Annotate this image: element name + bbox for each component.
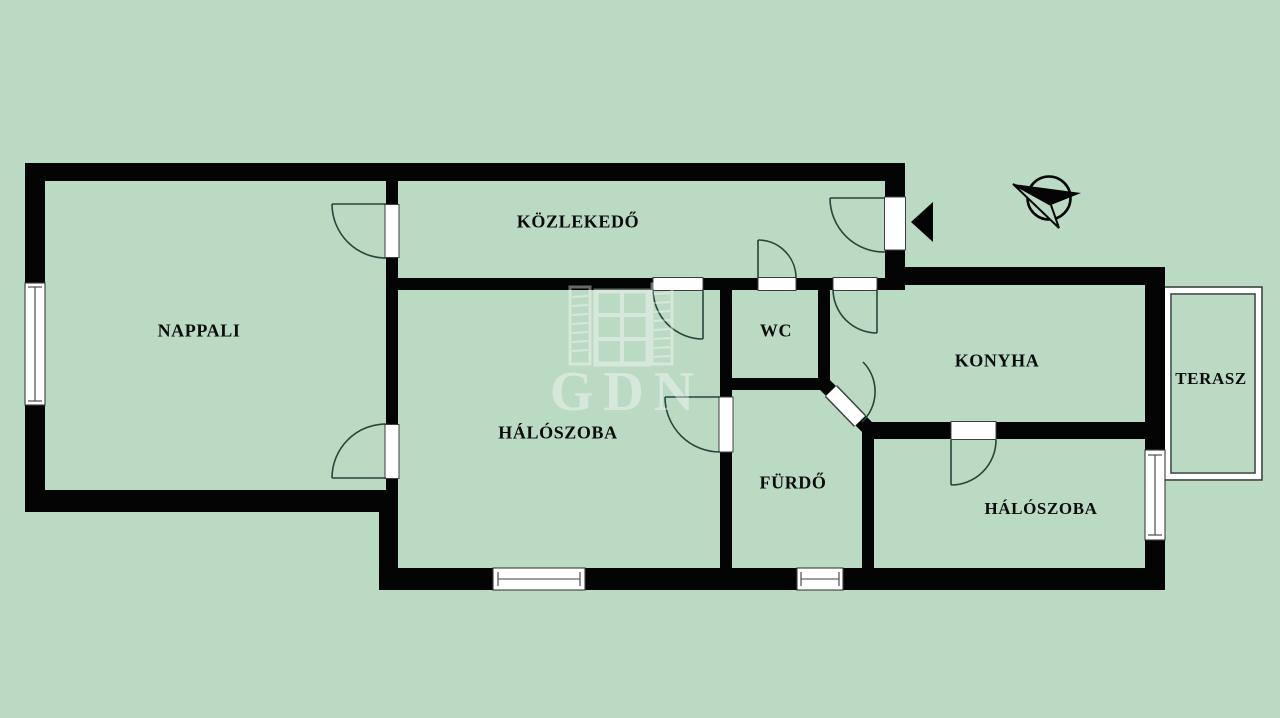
door-corridor-wc bbox=[758, 240, 796, 278]
diagonal-door-leaf bbox=[831, 391, 860, 421]
floor-plan: GDN NAPPALI KÖZLEKEDŐ WC KONYHA TERASZ H… bbox=[0, 0, 1280, 718]
compass-icon bbox=[1013, 177, 1081, 229]
door-corridor-bedroom1 bbox=[653, 289, 703, 339]
room-label-haloszoba-1: HÁLÓSZOBA bbox=[498, 423, 617, 444]
window-furdo bbox=[797, 568, 843, 590]
bedroom1-furdo-door-opening bbox=[719, 397, 733, 452]
corridor-konyha-door-opening bbox=[833, 278, 877, 291]
door-nappali-top bbox=[332, 204, 386, 258]
nappali-bedroom1-door-opening bbox=[385, 425, 399, 479]
entrance-arrow-icon bbox=[911, 202, 933, 242]
floor-plan-drawing: GDN bbox=[0, 0, 1280, 718]
room-label-terasz: TERASZ bbox=[1175, 369, 1247, 389]
room-label-wc: WC bbox=[760, 321, 792, 342]
konyha-bedroom2-door-opening bbox=[951, 422, 996, 440]
nappali-corridor-door-opening bbox=[385, 205, 399, 258]
door-konyha-bedroom2 bbox=[951, 440, 996, 485]
door-nappali-bottom bbox=[332, 424, 386, 478]
gdn-watermark: GDN bbox=[550, 284, 704, 423]
corridor-wc-door-opening bbox=[758, 278, 796, 291]
wall-wc-bottom bbox=[720, 378, 830, 390]
door-corridor-konyha bbox=[833, 289, 877, 333]
room-label-kozlekedo: KÖZLEKEDŐ bbox=[517, 212, 639, 233]
wall-bedroom2-left bbox=[862, 427, 874, 568]
door-entrance bbox=[830, 198, 885, 252]
entrance-door-opening bbox=[885, 197, 906, 250]
room-label-haloszoba-2: HÁLÓSZOBA bbox=[984, 499, 1097, 519]
room-label-konyha: KONYHA bbox=[955, 351, 1040, 372]
wall-wc-right bbox=[818, 289, 830, 388]
window-bedroom1 bbox=[493, 568, 585, 590]
gdn-logo-icon bbox=[570, 284, 672, 364]
window-nappali bbox=[25, 283, 45, 405]
room-label-nappali: NAPPALI bbox=[158, 321, 241, 342]
gdn-watermark-text: GDN bbox=[550, 361, 704, 423]
window-bedroom2 bbox=[1145, 450, 1165, 540]
wall-konyha-bottom bbox=[867, 422, 1145, 439]
room-label-furdo: FÜRDŐ bbox=[760, 473, 827, 494]
